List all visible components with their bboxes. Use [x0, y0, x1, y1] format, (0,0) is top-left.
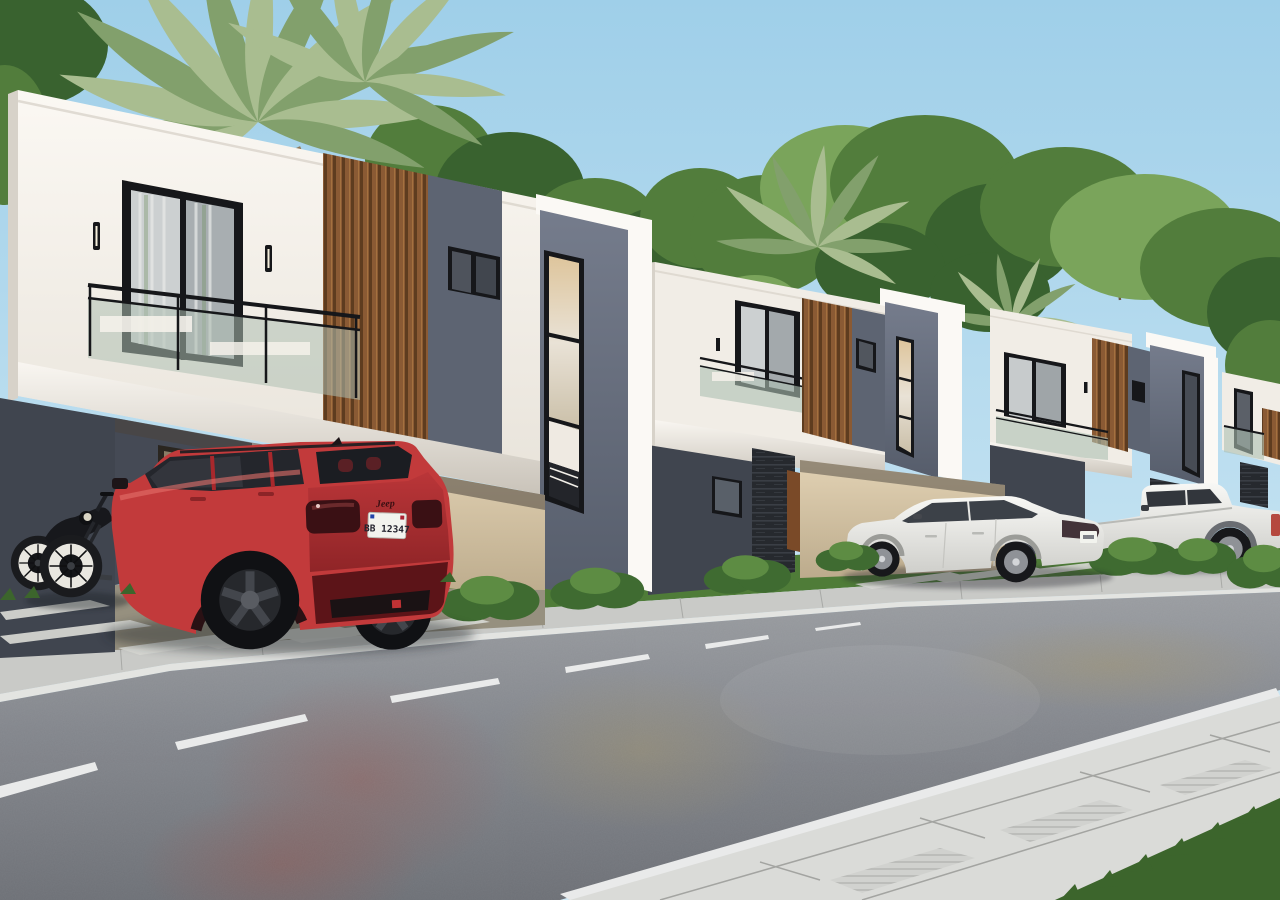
moto-handlebar	[100, 492, 114, 496]
sedan-door-handle-2	[972, 532, 984, 535]
suv-tail-light-right	[412, 499, 443, 528]
suv-brand-badge: Jeep	[375, 498, 395, 510]
b2-tower-window	[896, 336, 914, 458]
pickup-tail-light	[1271, 514, 1280, 536]
red-suv: Jeep BB 12347	[105, 437, 475, 654]
sedan-mirror	[913, 514, 922, 519]
b2-wood-slats	[802, 298, 852, 445]
balcony-bench-2	[210, 342, 310, 355]
b4-lower-stone	[1240, 462, 1268, 508]
moto-front-wheel	[40, 535, 102, 597]
architectural-rendering: Jeep BB 12347	[0, 0, 1280, 900]
suv-plate-text: BB 12347	[364, 523, 410, 536]
scene-canvas: Jeep BB 12347	[0, 0, 1280, 900]
suv-tail-light-left	[305, 499, 360, 534]
b2-sconce-left	[716, 338, 720, 351]
b2-stair-tower	[880, 288, 965, 482]
suv-tow-hook	[392, 600, 401, 608]
b4-wood-slats	[1262, 408, 1280, 460]
b2-gray-panel	[852, 308, 886, 452]
b1-sconce-left	[93, 222, 100, 250]
b1-tower-window	[544, 250, 584, 514]
sedan-door-handle	[925, 535, 937, 538]
b1-side-edge	[8, 90, 18, 402]
b1-stair-tower	[536, 194, 652, 602]
sedan-rear-wheel	[996, 542, 1037, 583]
pickup-mirror	[1141, 505, 1149, 511]
b3-small-window	[1132, 380, 1145, 403]
b3-sconce	[1084, 382, 1088, 393]
b1-sconce-right	[265, 245, 272, 272]
suv-rear-window	[316, 446, 412, 484]
suv-mirror	[112, 478, 128, 489]
b1-gray-panel	[428, 175, 502, 482]
suv-left-rear-wheel	[201, 551, 299, 649]
b3-wood-slats	[1092, 338, 1128, 452]
suv-door-handle-2	[258, 492, 274, 496]
b3-stair-tower	[1146, 332, 1218, 488]
b1-wood-slats	[323, 153, 428, 470]
b2-entry-door	[787, 470, 800, 552]
b2-lower-window	[712, 476, 742, 518]
sedan-plate	[1080, 531, 1097, 543]
suv-door-handle	[190, 497, 206, 501]
suv-license-plate: BB 12347	[364, 512, 411, 539]
